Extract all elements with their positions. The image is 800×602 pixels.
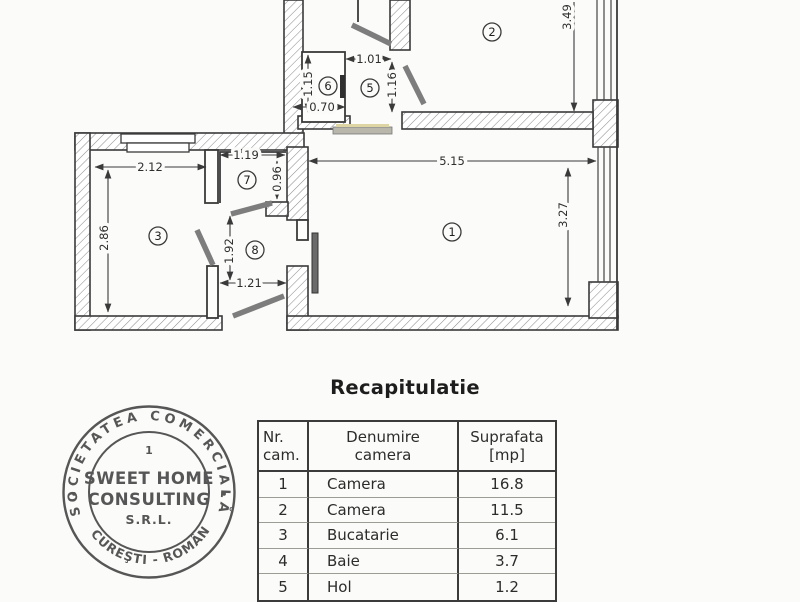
- dim-label: 0.70: [309, 100, 335, 114]
- row-area: 11.5: [459, 498, 555, 524]
- dim-label: 3.49: [560, 4, 574, 30]
- company-stamp: SOCIETATEA COMERCIALĂ BUCUREŞTI - ROMÂNI…: [59, 402, 239, 582]
- window: [121, 134, 195, 143]
- scanned-floorplan-page: { "recap": { "title": "Recapitulatie" },…: [0, 0, 800, 600]
- stamp-srl: S.R.L.: [125, 512, 172, 527]
- svg-text:8: 8: [251, 243, 258, 257]
- row-nr: 3: [259, 523, 309, 549]
- row-area: 3.7: [459, 549, 555, 575]
- threshold: [333, 127, 392, 134]
- row-nr: 4: [259, 549, 309, 575]
- threshold-tint: [336, 124, 389, 127]
- door-leaf-open: [312, 233, 318, 293]
- room-number-8: 8: [246, 241, 264, 259]
- wall: [390, 0, 410, 50]
- wall: [75, 133, 90, 330]
- windows: [121, 0, 611, 282]
- svg-text:1: 1: [448, 225, 455, 239]
- partition: [207, 266, 218, 318]
- stamp-dot-left: •: [70, 488, 77, 501]
- recap-table: Nr. cam. Denumire camera Suprafata [mp] …: [257, 420, 557, 602]
- wall: [287, 316, 618, 330]
- partition: [297, 220, 308, 240]
- svg-text:3: 3: [154, 229, 161, 243]
- dim-label: 1.92: [222, 238, 236, 264]
- header-nr-line1: Nr.: [263, 428, 284, 446]
- stamp-dot-right: •: [220, 488, 227, 501]
- row-name: Camera: [309, 498, 459, 524]
- row-area: 1.2: [459, 574, 555, 600]
- header-name: Denumire camera: [309, 422, 459, 472]
- window: [598, 147, 610, 282]
- row-name: Hol: [309, 574, 459, 600]
- dimensions: 2.12 2.86 1.19 0.96 5.15 3.27 3.49 1.92 …: [95, 2, 596, 312]
- recap-title: Recapitulatie: [5, 376, 800, 399]
- stamp-number: 1: [145, 444, 153, 457]
- row-name: Baie: [309, 549, 459, 575]
- header-area-line2: [mp]: [489, 446, 525, 464]
- partitions: [205, 0, 617, 330]
- row-name: Camera: [309, 472, 459, 498]
- partition: [205, 150, 218, 203]
- row-nr: 1: [259, 472, 309, 498]
- svg-text:6: 6: [324, 79, 331, 93]
- room-number-1: 1: [443, 223, 461, 241]
- window: [127, 143, 189, 152]
- room-number-6: 6: [319, 77, 337, 95]
- dim-label: 1.21: [236, 276, 262, 290]
- svg-text:2: 2: [488, 25, 495, 39]
- header-area: Suprafata [mp]: [459, 422, 555, 472]
- wall: [402, 112, 593, 129]
- svg-text:5: 5: [366, 81, 373, 95]
- row-nr: 5: [259, 574, 309, 600]
- row-nr: 2: [259, 498, 309, 524]
- dim-label: 2.86: [97, 225, 111, 251]
- door-leaf: [197, 230, 213, 265]
- window: [597, 0, 611, 100]
- header-nr-line2: cam.: [263, 446, 300, 464]
- dim-label: 5.15: [439, 154, 465, 168]
- wall: [75, 316, 222, 330]
- stamp-company-line1: SWEET HOME: [84, 469, 214, 488]
- room-number-2: 2: [483, 23, 501, 41]
- wall: [593, 100, 618, 147]
- row-name: Bucatarie: [309, 523, 459, 549]
- wall: [287, 147, 308, 220]
- room-number-7: 7: [238, 171, 256, 189]
- room-number-5: 5: [361, 79, 379, 97]
- header-nr: Nr. cam.: [259, 422, 309, 472]
- floor-plan: 2.12 2.86 1.19 0.96 5.15 3.27 3.49 1.92 …: [0, 0, 800, 370]
- dim-label: 1.01: [356, 52, 382, 66]
- header-name-line1: Denumire: [346, 428, 420, 446]
- dim-label: 2.12: [137, 160, 163, 174]
- row-area: 16.8: [459, 472, 555, 498]
- svg-text:7: 7: [243, 173, 250, 187]
- door-leaf: [233, 296, 284, 316]
- door-leaf: [405, 66, 424, 104]
- dim-label: 1.19: [233, 148, 259, 162]
- door-jamb: [340, 75, 345, 98]
- room-number-3: 3: [149, 227, 167, 245]
- dim-label: 1.16: [385, 72, 399, 98]
- header-area-line1: Suprafata: [470, 428, 543, 446]
- dim-label: 1.15: [301, 71, 315, 97]
- dim-label: 0.96: [270, 166, 284, 192]
- stamp-company-line2: CONSULTING: [88, 490, 211, 509]
- door-leaf: [352, 25, 391, 44]
- row-area: 6.1: [459, 523, 555, 549]
- dim-label: 3.27: [556, 202, 570, 228]
- wall: [589, 282, 618, 318]
- header-name-line2: camera: [355, 446, 412, 464]
